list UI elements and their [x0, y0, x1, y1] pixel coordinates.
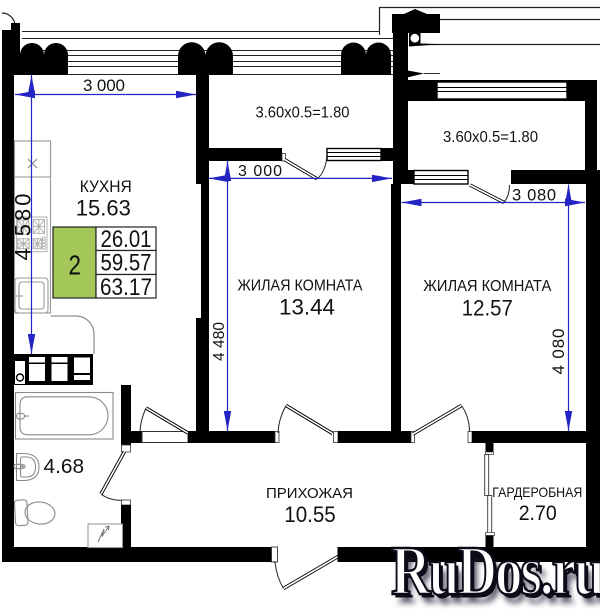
svg-text:3 080: 3 080	[512, 187, 556, 205]
svg-text:4 080: 4 080	[549, 329, 568, 375]
svg-text:ЖИЛАЯ КОМНАТА: ЖИЛАЯ КОМНАТА	[238, 278, 364, 295]
svg-text:2.70: 2.70	[519, 502, 557, 525]
svg-text:12.57: 12.57	[462, 296, 513, 321]
svg-text:3 000: 3 000	[238, 163, 282, 180]
svg-text:ГАРДЕРОБНАЯ: ГАРДЕРОБНАЯ	[492, 485, 582, 500]
svg-text:63.17: 63.17	[100, 274, 152, 301]
svg-text:59.57: 59.57	[101, 250, 152, 277]
svg-text:4 480: 4 480	[211, 322, 228, 361]
svg-text:13.44: 13.44	[279, 295, 335, 320]
svg-text:3.60x0.5=1.80: 3.60x0.5=1.80	[443, 129, 538, 146]
svg-text:4 580: 4 580	[11, 194, 36, 261]
svg-text:3 000: 3 000	[83, 76, 125, 95]
svg-text:ЖИЛАЯ КОМНАТА: ЖИЛАЯ КОМНАТА	[423, 278, 552, 295]
svg-text:2: 2	[68, 250, 81, 281]
svg-text:ПРИХОЖАЯ: ПРИХОЖАЯ	[266, 485, 353, 502]
svg-text:4.68: 4.68	[44, 455, 85, 478]
svg-text:КУХНЯ: КУХНЯ	[80, 178, 132, 196]
svg-text:10.55: 10.55	[284, 502, 335, 527]
svg-text:3.60x0.5=1.80: 3.60x0.5=1.80	[256, 105, 350, 122]
svg-text:15.63: 15.63	[76, 196, 131, 221]
